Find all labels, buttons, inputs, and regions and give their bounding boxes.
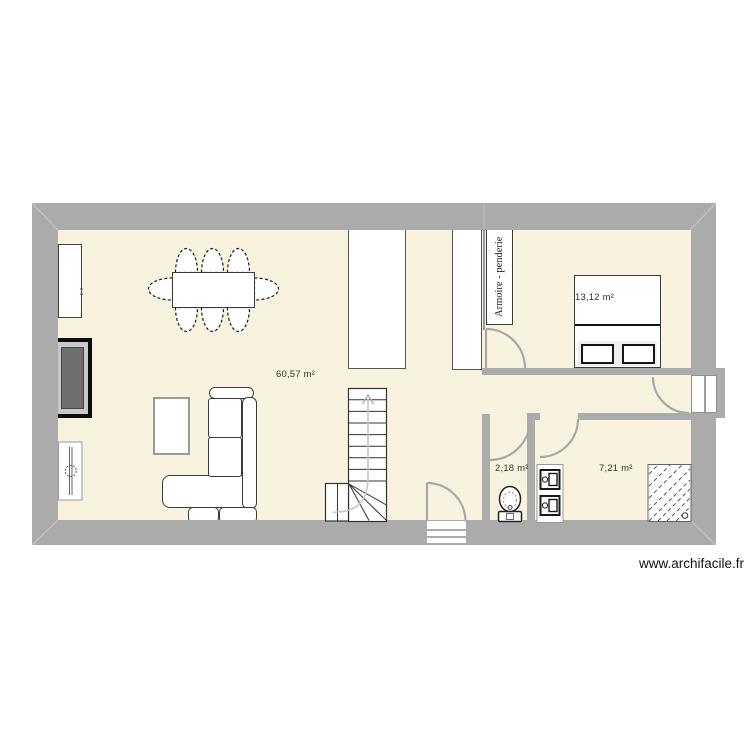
- wall-hall-south-b[interactable]: [578, 413, 691, 420]
- double-window[interactable]: [691, 375, 717, 413]
- closet-label: Armoire - penderie: [487, 230, 512, 324]
- wall-hall-south-a[interactable]: [527, 413, 540, 420]
- coffee-table[interactable]: [153, 397, 190, 455]
- wall-bottom[interactable]: [32, 520, 716, 545]
- entry-door-sill-line: [427, 529, 466, 531]
- room-label-utility: 7,21 m²: [599, 463, 633, 474]
- wardrobe-2[interactable]: [452, 229, 482, 370]
- room-label-living: 60,57 m²: [276, 369, 315, 380]
- entry-door-opening[interactable]: [427, 521, 466, 543]
- sofa-armrest[interactable]: [242, 397, 257, 509]
- wall-right[interactable]: [691, 203, 716, 545]
- wall-wc-west[interactable]: [482, 414, 490, 520]
- watermark: www.archifacile.fr: [634, 556, 744, 571]
- floor-plan: Armoire - penderie: [0, 0, 750, 750]
- pillow: [622, 344, 655, 364]
- wardrobe-1[interactable]: [348, 228, 406, 369]
- bed-blanket-line: [575, 324, 660, 326]
- room-label-wc: 2,18 m²: [495, 463, 529, 474]
- double-bed[interactable]: [574, 275, 661, 368]
- fireplace[interactable]: [53, 338, 92, 418]
- pillow: [581, 344, 614, 364]
- wall-bedroom-south[interactable]: [482, 368, 691, 375]
- dining-table[interactable]: [172, 272, 255, 308]
- sideboard[interactable]: [58, 244, 82, 318]
- closet-armoire[interactable]: Armoire - penderie: [486, 229, 513, 325]
- fireplace-core: [61, 347, 84, 409]
- wall-right-pier[interactable]: [716, 368, 725, 418]
- wall-left[interactable]: [32, 203, 58, 545]
- wall-top[interactable]: [32, 203, 716, 230]
- sofa-seat[interactable]: [208, 398, 242, 438]
- window-mullion: [704, 376, 706, 412]
- entry-door-sill-line: [427, 536, 466, 538]
- wall-bedroom-west[interactable]: [483, 229, 485, 330]
- sofa-seat[interactable]: [208, 437, 242, 477]
- room-label-bedroom: 13,12 m²: [575, 292, 614, 303]
